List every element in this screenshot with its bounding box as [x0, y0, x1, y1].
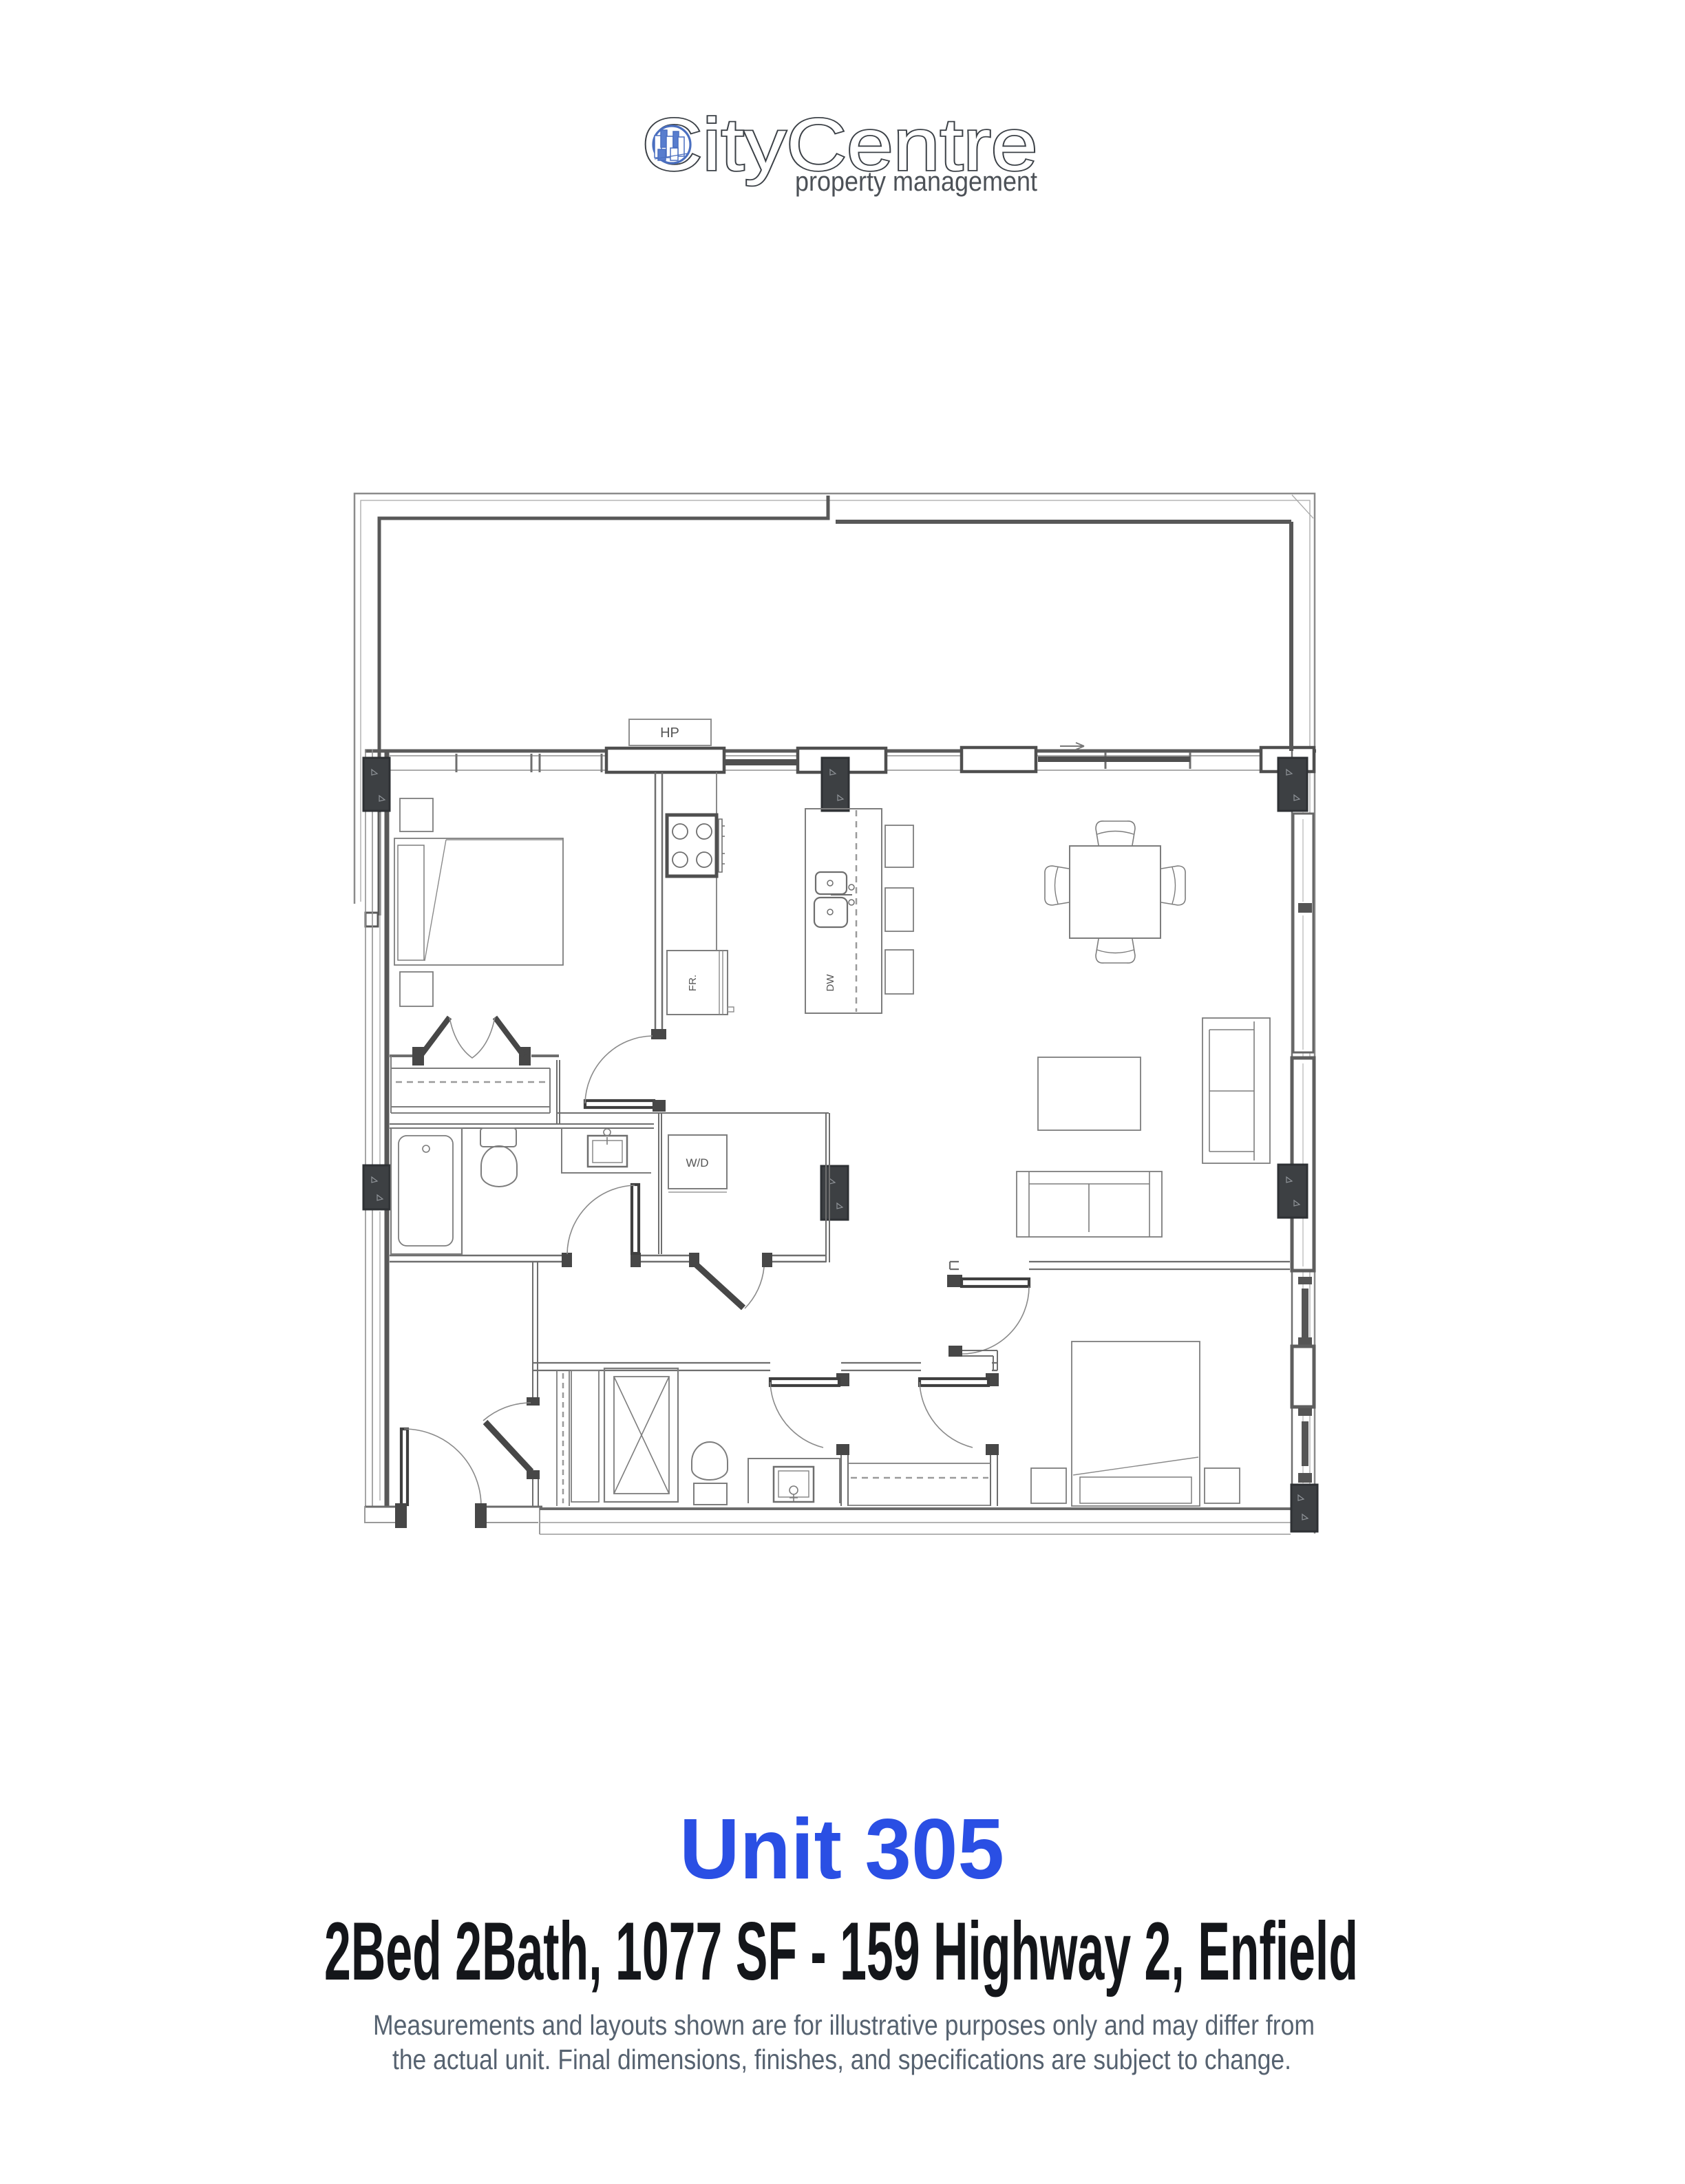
svg-text:property management: property management [795, 167, 1037, 197]
svg-text:Measurements and layouts shown: Measurements and layouts shown are for i… [373, 2009, 1315, 2041]
svg-text:W/D: W/D [686, 1156, 708, 1169]
svg-text:2Bed 2Bath, 1077 SF - 159 High: 2Bed 2Bath, 1077 SF - 159 Highway 2, Enf… [324, 1905, 1358, 1997]
svg-text:FR.: FR. [687, 975, 699, 991]
svg-text:the actual unit. Final dimensi: the actual unit. Final dimensions, finis… [392, 2044, 1291, 2075]
svg-text:HP: HP [660, 725, 679, 741]
svg-text:Unit 305: Unit 305 [679, 1802, 1004, 1897]
svg-text:DW: DW [825, 974, 836, 992]
